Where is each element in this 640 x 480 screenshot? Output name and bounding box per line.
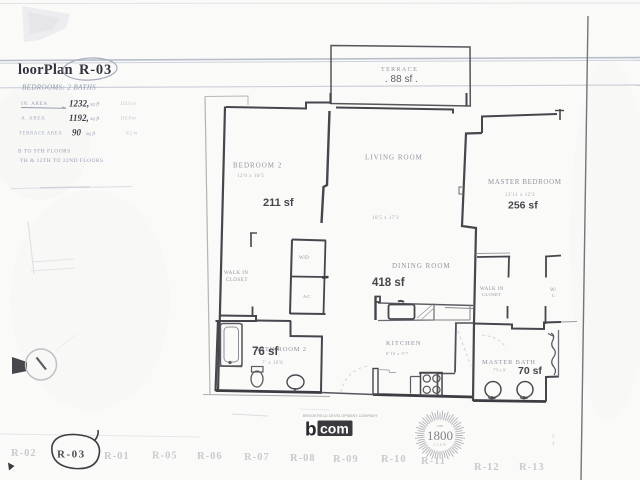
svg-text:TERRACE AREA: TERRACE AREA xyxy=(19,132,62,137)
svg-text:sq ft: sq ft xyxy=(86,130,96,137)
svg-text:loorPlan: loorPlan xyxy=(18,62,73,78)
svg-text:8.2 m: 8.2 m xyxy=(126,132,138,137)
svg-text:b: b xyxy=(305,420,317,441)
svg-text:TERRACE: TERRACE xyxy=(381,67,418,73)
svg-text:R-02: R-02 xyxy=(11,448,37,459)
svg-text:7'5 x 9': 7'5 x 9' xyxy=(493,368,506,373)
svg-text:R-12: R-12 xyxy=(474,462,500,473)
svg-text:WALK IN: WALK IN xyxy=(224,271,248,276)
svg-text:BROOKFIELD DEVELOPMENT COMPANY: BROOKFIELD DEVELOPMENT COMPANY xyxy=(303,414,378,418)
svg-text:B TO 9TH FLOORS: B TO 9TH FLOORS xyxy=(18,149,71,155)
svg-text:8'10 x 9'7: 8'10 x 9'7 xyxy=(386,351,409,356)
svg-text:211 sf: 211 sf xyxy=(263,197,294,209)
svg-text:TH & 12TH TO 22ND FLOORS: TH & 12TH TO 22ND FLOORS xyxy=(20,158,104,164)
svg-text:MASTER BEDROOM: MASTER BEDROOM xyxy=(488,178,562,186)
svg-text:R-13: R-13 xyxy=(519,462,545,473)
svg-text:CLOSET: CLOSET xyxy=(226,278,248,283)
svg-text:114.6 m: 114.6 m xyxy=(120,102,136,107)
svg-text:R-10: R-10 xyxy=(381,454,407,465)
svg-text:com: com xyxy=(320,421,349,437)
svg-text:R-05: R-05 xyxy=(152,451,178,462)
svg-text:W/D: W/D xyxy=(299,256,309,261)
svg-text:12'6 x 16'5: 12'6 x 16'5 xyxy=(237,174,264,179)
svg-text:A/C: A/C xyxy=(303,294,311,299)
svg-text:A. AREA: A. AREA xyxy=(21,116,45,122)
svg-text:R-11: R-11 xyxy=(421,456,446,467)
svg-text:R-06: R-06 xyxy=(197,451,223,462)
svg-text:KITCHEN: KITCHEN xyxy=(386,340,422,347)
svg-text:R-03: R-03 xyxy=(57,449,86,461)
svg-text:CLUB: CLUB xyxy=(433,443,446,447)
svg-text:CLOSET: CLOSET xyxy=(482,292,501,297)
svg-text:sq ft: sq ft xyxy=(90,115,100,122)
svg-text:70 sf: 70 sf xyxy=(518,365,542,377)
svg-text:256 sf: 256 sf xyxy=(508,200,538,212)
svg-text:1232,: 1232, xyxy=(69,99,89,109)
svg-text:7' x 10'6: 7' x 10'6 xyxy=(262,361,283,366)
svg-text:BEDROOMS: 2 BATHS: BEDROOMS: 2 BATHS xyxy=(22,84,96,92)
svg-text:R-01: R-01 xyxy=(104,451,130,462)
svg-text:R-09: R-09 xyxy=(333,454,359,465)
svg-text:BEDROOM 2: BEDROOM 2 xyxy=(233,162,282,170)
svg-text:1192,: 1192, xyxy=(69,113,89,123)
svg-text:90: 90 xyxy=(72,128,82,138)
svg-text:10'5 x 17'2: 10'5 x 17'2 xyxy=(372,216,399,221)
svg-text:110.8 m: 110.8 m xyxy=(120,117,136,122)
svg-text:R-08: R-08 xyxy=(290,453,316,464)
svg-text:IN. AREA: IN. AREA xyxy=(21,101,48,107)
svg-text:C: C xyxy=(552,293,555,298)
svg-text:DINING ROOM: DINING ROOM xyxy=(392,262,451,270)
svg-text:R-03: R-03 xyxy=(79,62,112,78)
svg-text:. 88 sf .: . 88 sf . xyxy=(385,74,418,85)
svg-text:LIVING ROOM: LIVING ROOM xyxy=(365,154,423,162)
svg-text:76 sf: 76 sf xyxy=(252,346,278,358)
svg-text:R-07: R-07 xyxy=(244,452,270,463)
svg-text:1800: 1800 xyxy=(427,428,453,443)
svg-text:418 sf: 418 sf xyxy=(372,277,405,289)
svg-text:12'11 x 12'2: 12'11 x 12'2 xyxy=(505,193,535,198)
svg-text:sq ft: sq ft xyxy=(90,101,100,108)
